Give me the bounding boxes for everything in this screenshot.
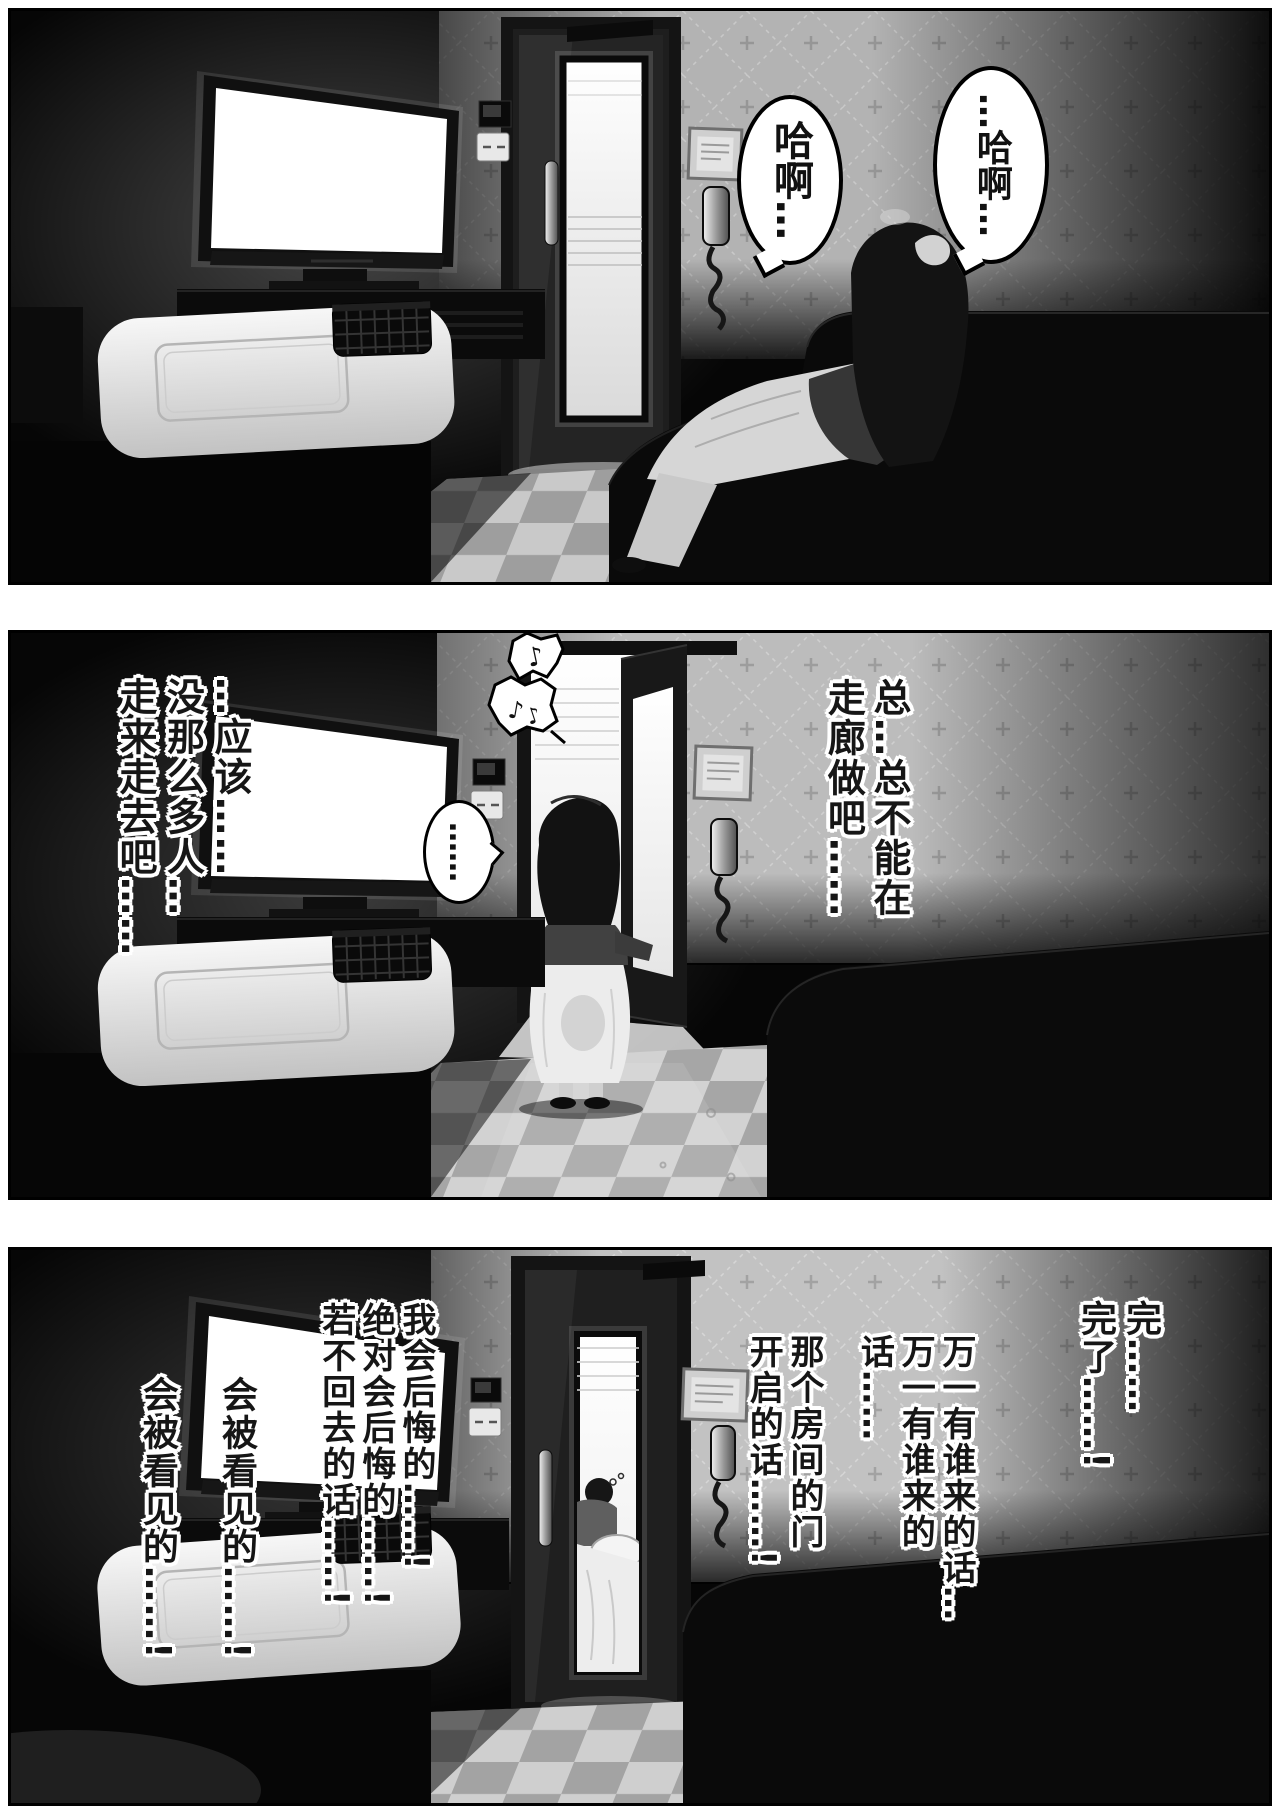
monologue-left: …应该…… 没那么多人… 走来走去吧…… (107, 677, 253, 1017)
door (501, 17, 698, 488)
notice-board (694, 746, 752, 800)
ellipsis-bubble: …… (423, 800, 495, 904)
intercom-screen (471, 1378, 501, 1402)
monologue-right: 总…总不能在 走廊做吧…… (815, 678, 911, 918)
door-handle (545, 161, 558, 245)
side-cabinet (11, 307, 83, 423)
speech-text: …哈啊… (972, 93, 1010, 237)
monologue-seen: 会被看见的……! 会被看见的……! (138, 1376, 276, 1716)
monologue-done: 完…… 完了……! (1069, 1300, 1163, 1490)
intercom-screen (479, 101, 511, 127)
door (511, 1256, 705, 1716)
panel-1: 哈啊… …哈啊… (8, 8, 1272, 585)
couch-right (767, 931, 1269, 1197)
light-switch (477, 133, 509, 161)
basket (332, 927, 432, 982)
ellipsis-text: …… (443, 822, 475, 882)
speech-text: 哈啊… (769, 120, 811, 240)
light-switch (469, 1408, 501, 1436)
speech-bubble-right: …哈啊… (933, 66, 1049, 264)
monologue-regret: 我会后悔的……! 绝对会后悔的……! 若不回去的话……! (312, 1302, 436, 1692)
panel-3: 完…… 完了……! 万一有谁来的话… 万一有谁来的话…… 那个房间的门 开启的话… (8, 1247, 1272, 1806)
monologue-door-opens: 那个房间的门 开启的话……! (738, 1334, 824, 1574)
door-leaf-window (633, 687, 673, 977)
notice-board (688, 128, 742, 180)
speech-bubble-left: 哈啊… (737, 95, 843, 265)
panel1-scene (11, 11, 1269, 582)
basket (332, 301, 432, 356)
monologue-if-someone-comes: 万一有谁来的话… 万一有谁来的话…… (888, 1334, 976, 1624)
couch-left (11, 441, 431, 582)
intercom-screen (473, 759, 505, 785)
door-handle (539, 1450, 552, 1546)
comic-page: 哈啊… …哈啊… (0, 0, 1280, 1813)
panel-2: ♪ ♪ ♪ …应该…… 没那么多人… 走来走去吧…… 总…总不能在 走廊做吧……… (8, 630, 1272, 1200)
